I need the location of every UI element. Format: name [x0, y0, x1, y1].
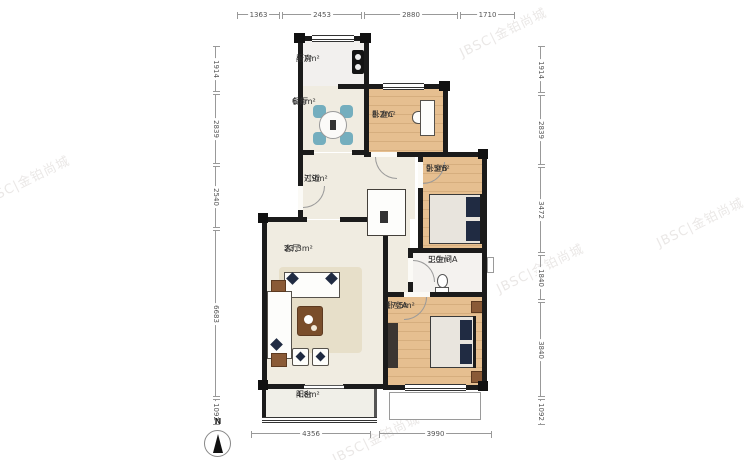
dimension-value: 2839 — [537, 119, 545, 141]
compass-arrow-icon — [213, 434, 223, 453]
room-area: 5.0m² — [428, 255, 452, 265]
watermark: JBSC|金铂尚城 — [0, 150, 73, 209]
dimension-value: 2880 — [400, 11, 422, 19]
dimension-value: 6683 — [212, 303, 220, 325]
room-area: 8.2m² — [372, 110, 396, 120]
dining-table-centerpiece — [330, 120, 336, 130]
sliding-door — [304, 385, 344, 389]
bed-b-pillow — [466, 221, 480, 241]
room-area: 7.9m² — [304, 174, 328, 184]
room-area: 4.8m² — [296, 390, 320, 400]
wall-post — [478, 381, 488, 391]
stove-burner-icon — [355, 54, 361, 60]
dimension-value: 1914 — [212, 58, 220, 80]
wall-post — [478, 149, 488, 159]
dimension-value: 1363 — [248, 11, 270, 19]
room-area: 6.8m² — [292, 97, 316, 107]
dimension-bottom-2: 3990 — [378, 427, 493, 440]
dimension-top-1: 1363 — [236, 8, 281, 21]
wall-post — [258, 213, 268, 223]
wall — [352, 150, 369, 155]
dimension-bottom-1: 4356 — [250, 427, 372, 440]
bed-a-pillow — [460, 320, 472, 340]
room-area: 9.5m² — [426, 164, 450, 174]
wall-post — [439, 81, 450, 91]
bed-a-headboard — [473, 316, 476, 368]
dimension-left-2: 2839 — [209, 93, 222, 165]
dimension-left-3: 2540 — [209, 165, 222, 229]
dimension-value: 3840 — [537, 339, 545, 361]
side-table — [271, 280, 286, 292]
dimension-value: 2540 — [212, 186, 220, 208]
balcony-window — [262, 417, 377, 423]
dimension-top-4: 1710 — [459, 8, 516, 21]
dimension-top-3: 2880 — [363, 8, 459, 21]
bed-b-pillow — [466, 197, 480, 217]
dimension-value: 2839 — [212, 118, 220, 140]
floor-plan-canvas: JBSC|金铂尚城 JBSC|金铂尚城 JBSC|金铂尚城 JBSC|金铂尚城 … — [0, 0, 746, 460]
wall — [262, 384, 305, 389]
window — [383, 83, 424, 90]
wall-post — [360, 33, 371, 43]
wall — [364, 36, 369, 157]
side-table — [271, 353, 287, 367]
dimension-right-6: 1092 — [534, 398, 547, 426]
dimension-value: 1914 — [537, 59, 545, 81]
dimension-left-1: 1914 — [209, 45, 222, 93]
dimension-value: 1840 — [537, 267, 545, 289]
dimension-right-5: 3840 — [534, 301, 547, 398]
bay-window — [389, 392, 481, 420]
bed-a-pillow — [460, 344, 472, 364]
wall-post — [258, 380, 268, 390]
bay-window — [487, 257, 494, 273]
compass-north-label: N — [212, 417, 224, 427]
room-area: 17.5m² — [386, 301, 415, 311]
stove-burner-icon — [355, 64, 361, 70]
coffee-table-bowl — [311, 325, 317, 331]
wall — [443, 84, 448, 157]
dimension-top-2: 2453 — [281, 8, 363, 21]
dimension-right-1: 1914 — [534, 45, 547, 94]
dimension-left-4: 6683 — [209, 229, 222, 398]
wall — [374, 389, 377, 420]
room-area: 23.3m² — [284, 244, 313, 254]
window — [405, 384, 466, 391]
dimension-value: 1092 — [537, 401, 545, 423]
dimension-value: 3990 — [425, 430, 447, 438]
room-area: 4.7m² — [296, 54, 320, 64]
dimension-right-4: 1840 — [534, 254, 547, 301]
wall — [343, 384, 388, 389]
dimension-value: 2453 — [311, 11, 333, 19]
wall — [383, 292, 487, 297]
wall — [340, 217, 370, 222]
wall — [408, 248, 487, 253]
wardrobe — [388, 323, 398, 368]
cabinet-icon — [380, 211, 388, 223]
desk-chair — [412, 111, 421, 124]
dimension-right-2: 2839 — [534, 94, 547, 166]
coffee-table-bowl — [304, 315, 313, 324]
wall — [262, 217, 267, 389]
dimension-right-3: 3472 — [534, 166, 547, 254]
wall-post — [294, 33, 305, 43]
watermark: JBSC|金铂尚城 — [653, 192, 746, 251]
sofa-chaise — [267, 291, 292, 359]
dimension-value: 4356 — [300, 430, 322, 438]
dimension-value: 1710 — [477, 11, 499, 19]
dimension-value: 3472 — [537, 199, 545, 221]
toilet-bowl-icon — [437, 274, 448, 288]
compass-icon — [204, 430, 231, 457]
desk — [420, 100, 435, 136]
window — [312, 35, 354, 42]
